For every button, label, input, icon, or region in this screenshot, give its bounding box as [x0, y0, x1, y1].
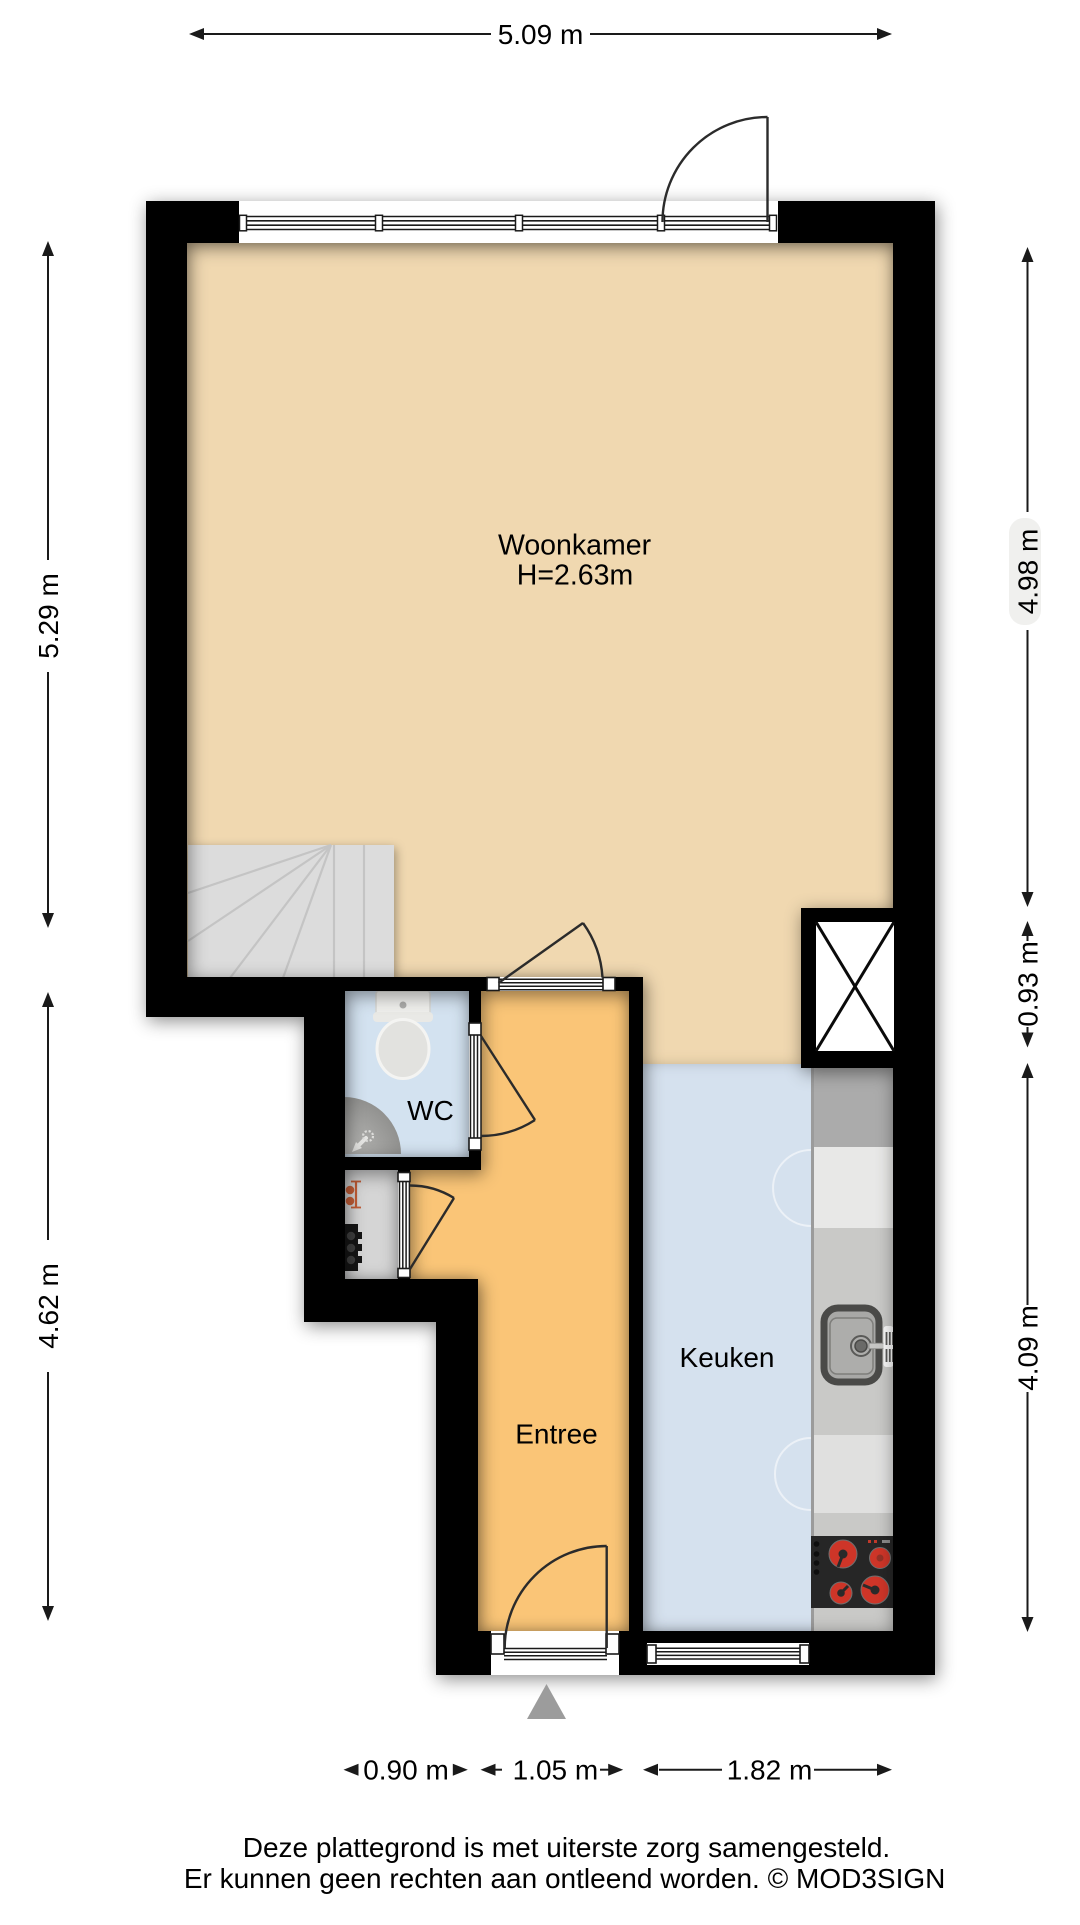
svg-text:H=2.63m: H=2.63m: [517, 560, 633, 592]
svg-text:Keuken: Keuken: [680, 1342, 775, 1373]
svg-text:4.62 m: 4.62 m: [33, 1263, 64, 1349]
svg-text:5.29 m: 5.29 m: [33, 573, 64, 659]
svg-text:4.09 m: 4.09 m: [1013, 1305, 1044, 1391]
svg-text:Entree: Entree: [515, 1419, 598, 1450]
svg-text:Deze plattegrond is met uiters: Deze plattegrond is met uiterste zorg sa…: [243, 1832, 890, 1863]
svg-text:1.05 m: 1.05 m: [513, 1755, 599, 1786]
svg-text:1.82 m: 1.82 m: [727, 1755, 813, 1786]
svg-text:Er kunnen geen rechten aan ont: Er kunnen geen rechten aan ontleend word…: [184, 1863, 946, 1894]
svg-text:0.90 m: 0.90 m: [363, 1755, 449, 1786]
svg-text:WC: WC: [407, 1095, 454, 1126]
svg-text:4.98 m: 4.98 m: [1013, 529, 1044, 615]
svg-text:0.93 m: 0.93 m: [1013, 941, 1044, 1027]
svg-text:5.09 m: 5.09 m: [498, 19, 584, 50]
svg-text:Woonkamer: Woonkamer: [498, 530, 652, 562]
